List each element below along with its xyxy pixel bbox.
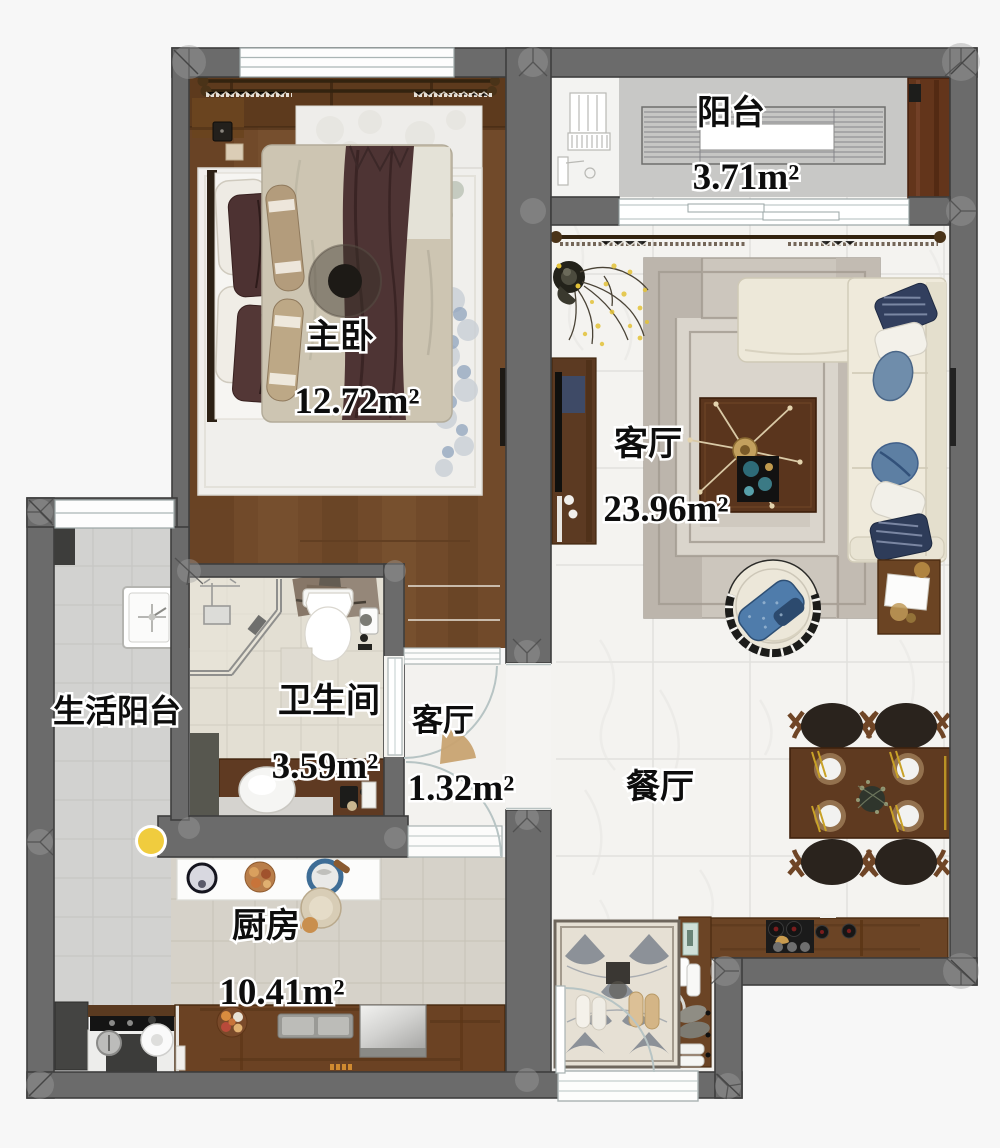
- svg-text:12.72m²: 12.72m²: [294, 381, 419, 422]
- svg-text:客厅: 客厅: [614, 424, 682, 463]
- svg-text:3.71m²: 3.71m²: [693, 157, 800, 198]
- svg-text:1.32m²: 1.32m²: [408, 768, 515, 809]
- svg-text:厨房: 厨房: [232, 907, 300, 945]
- svg-text:生活阳台: 生活阳台: [53, 693, 181, 729]
- svg-text:23.96m²: 23.96m²: [603, 489, 728, 530]
- svg-text:餐厅: 餐厅: [626, 768, 694, 806]
- svg-text:3.59m²: 3.59m²: [272, 746, 379, 787]
- svg-text:主卧: 主卧: [306, 318, 374, 356]
- svg-text:客厅: 客厅: [412, 703, 474, 738]
- svg-text:阳台: 阳台: [697, 94, 765, 132]
- svg-text:10.41m²: 10.41m²: [219, 972, 344, 1013]
- svg-text:卫生间: 卫生间: [278, 682, 380, 720]
